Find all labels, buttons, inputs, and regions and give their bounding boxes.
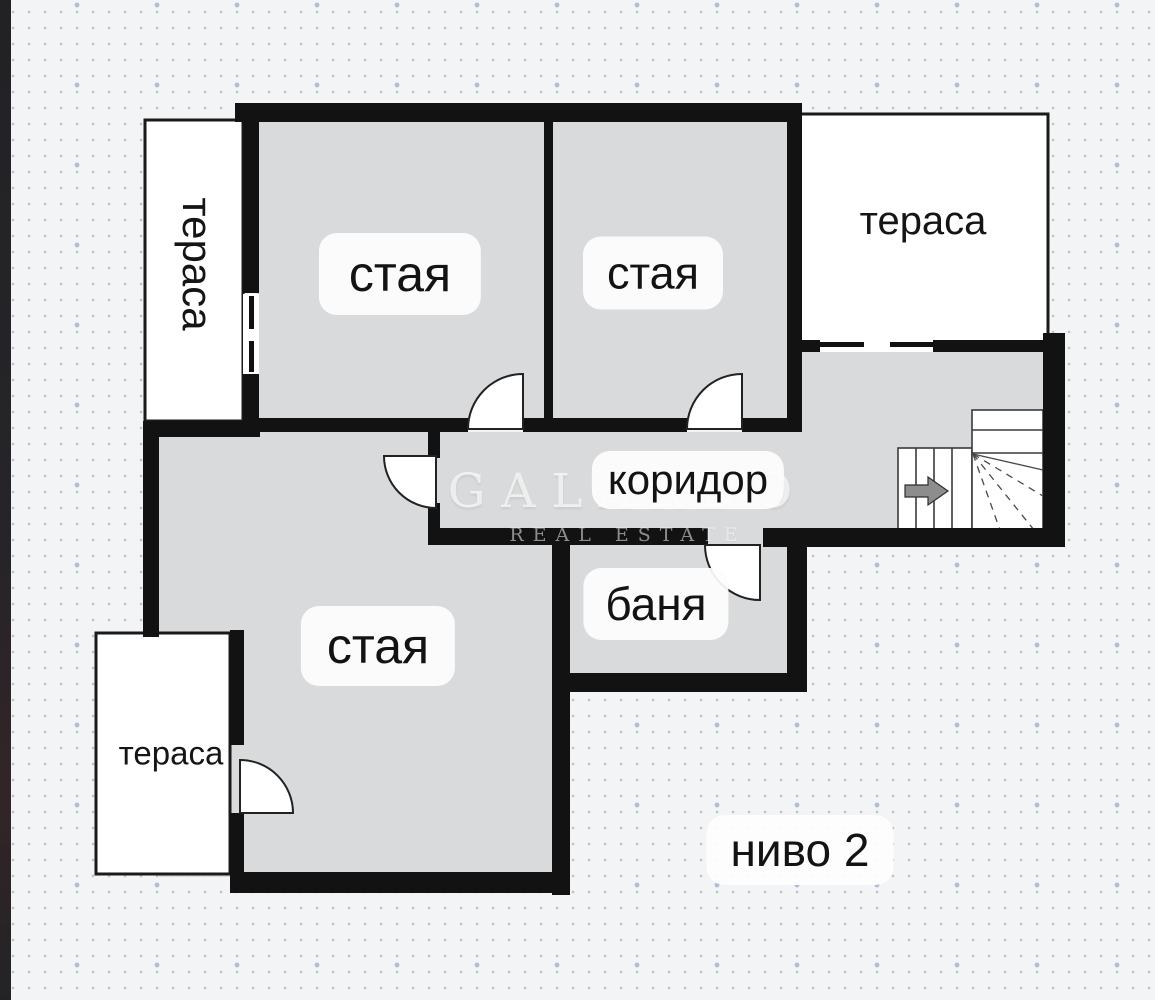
wall-room-divider: [544, 122, 553, 422]
wall-corridor-stub-top: [428, 418, 440, 458]
level-label: ниво 2: [707, 815, 894, 885]
terrace-label-top-left: тераса: [176, 197, 218, 330]
wall-terrace1-right-upper: [243, 122, 259, 293]
room-label-top-left: стая: [319, 233, 481, 315]
terrace2-door-dash: [820, 342, 864, 347]
wall-room-bath-divider: [552, 528, 570, 895]
wall-terrace2-bottom-left: [798, 340, 820, 352]
terrace-label-top-right: тераса: [860, 201, 987, 241]
wall-terrace1-bottom: [143, 421, 260, 437]
wall-terrace1-right-lower: [243, 373, 259, 423]
room-label-bottom: стая: [301, 606, 455, 686]
terrace2-door-dash: [890, 342, 934, 347]
wall-top: [235, 103, 802, 122]
wall-bath-right: [787, 543, 807, 692]
wall-bath-bottom: [552, 673, 807, 692]
wall-terrace3-right-lower: [230, 813, 244, 877]
wall-terrace3-right-upper: [230, 630, 244, 745]
wall-rooms-bottom-2: [523, 418, 687, 432]
terrace1-door-dash: [249, 341, 254, 372]
screenshot-left-edge: [0, 0, 11, 1000]
wall-rooms-right: [787, 103, 802, 432]
bathroom-label: баня: [583, 568, 728, 640]
room-label-top-right: стая: [583, 237, 723, 310]
corridor-label: коридор: [592, 451, 784, 509]
wall-left-exterior: [143, 437, 159, 637]
wall-under-stairs: [763, 528, 1065, 547]
wall-room-bottom: [230, 872, 570, 893]
floor-plan-drawing: [0, 0, 1155, 1000]
terrace1-door-dash: [249, 296, 254, 329]
terrace-label-bottom-left: тераса: [119, 737, 224, 770]
wall-right-exterior: [1043, 333, 1065, 547]
floor-plan-canvas: GALARDO REAL ESTATE стая стая стая корид…: [0, 0, 1155, 1000]
